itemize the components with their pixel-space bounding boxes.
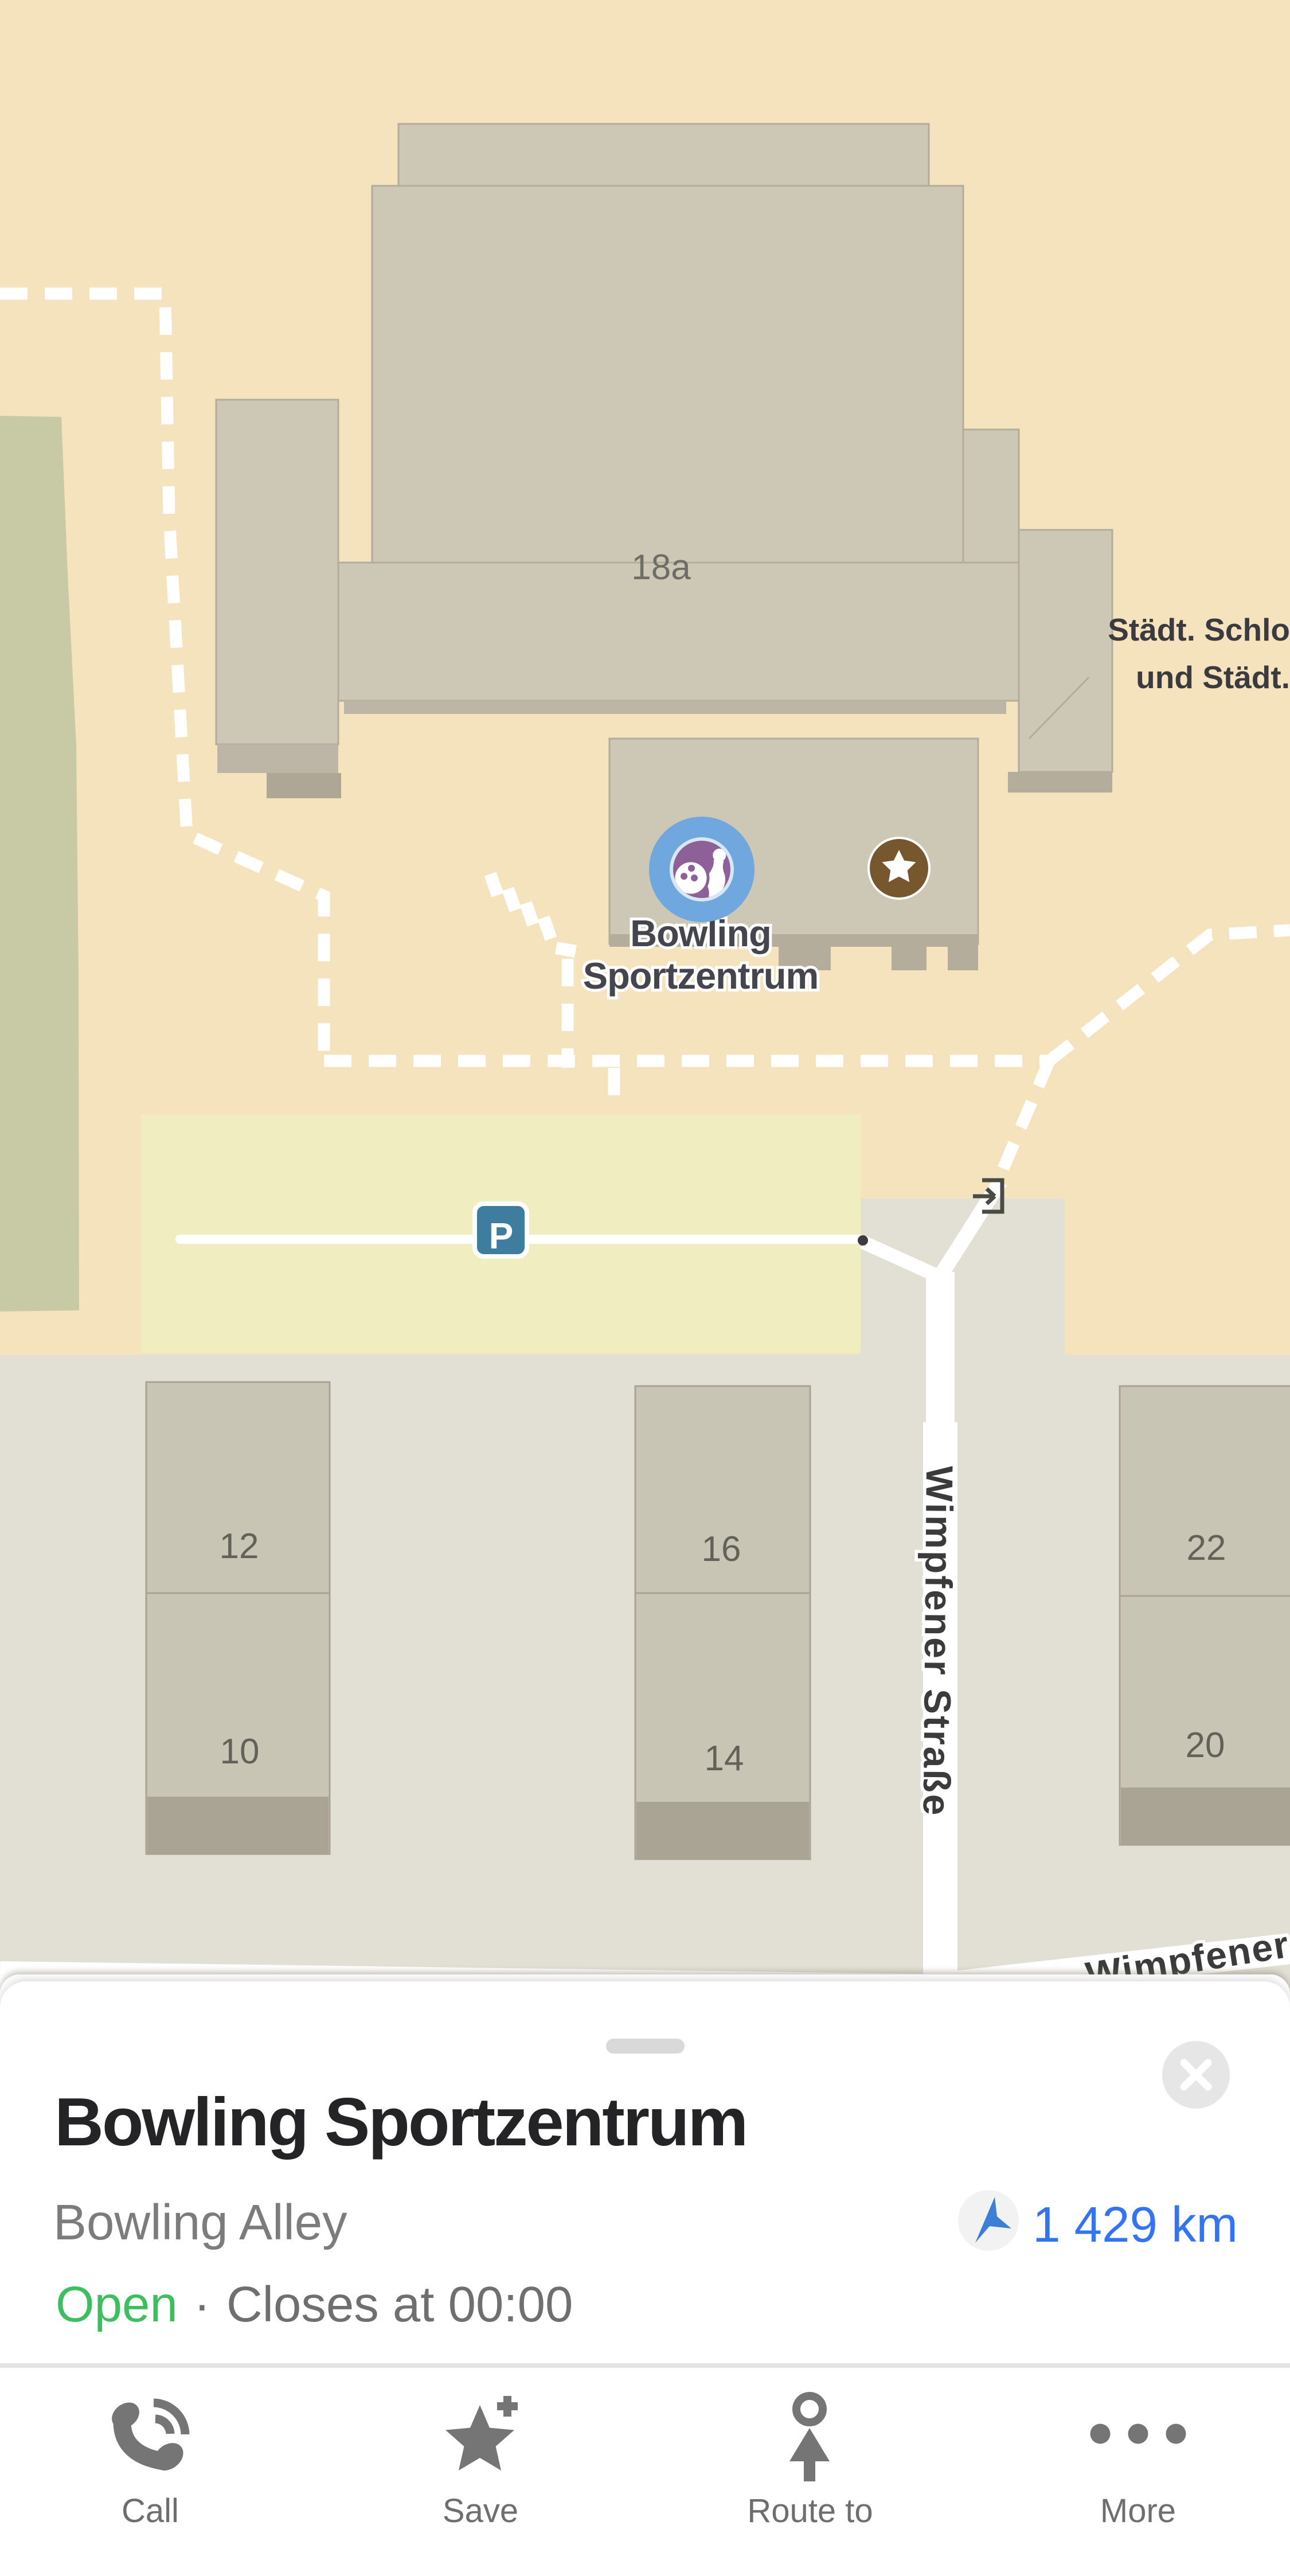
svg-text:16: 16: [702, 1529, 741, 1569]
svg-text:18a: 18a: [631, 548, 691, 587]
svg-text:Wimpfener Straße: Wimpfener Straße: [916, 1466, 961, 1817]
svg-text:Städt. Schlo: Städt. Schlo: [1108, 612, 1290, 647]
svg-text:und Städt.: und Städt.: [1136, 659, 1290, 695]
svg-text:12: 12: [220, 1527, 259, 1566]
svg-text:20: 20: [1186, 1726, 1225, 1765]
svg-text:P: P: [489, 1215, 514, 1256]
svg-text:22: 22: [1187, 1528, 1226, 1568]
svg-text:Sportzentrum: Sportzentrum: [583, 955, 819, 997]
svg-text:10: 10: [220, 1732, 260, 1771]
svg-text:14: 14: [705, 1739, 744, 1778]
